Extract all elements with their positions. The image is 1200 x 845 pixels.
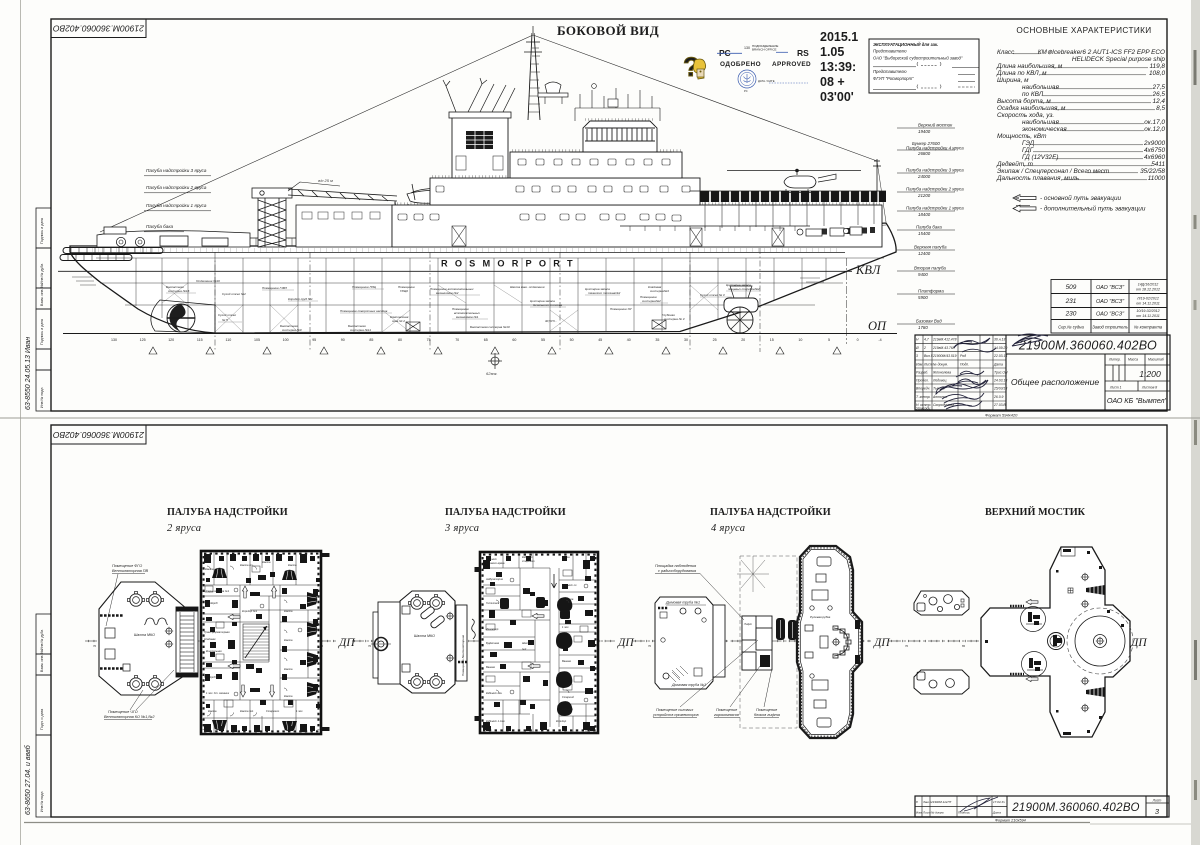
svg-text:Изолятор: Изолятор <box>486 627 499 631</box>
svg-text:24.03.13: 24.03.13 <box>993 379 1007 383</box>
svg-text:Класс: Класс <box>997 49 1015 56</box>
svg-text:110: 110 <box>226 338 232 342</box>
svg-text:Помещение ГРЩ: Помещение ГРЩ <box>352 285 376 289</box>
svg-text:Салон: Салон <box>562 555 570 559</box>
svg-text:115: 115 <box>197 338 203 342</box>
svg-text:Скородумова: Скородумова <box>933 403 954 407</box>
svg-text:90: 90 <box>341 338 345 342</box>
svg-text:Вентиляторная ПВ: Вентиляторная ПВ <box>112 569 149 573</box>
svg-text:35/22/58: 35/22/58 <box>1140 168 1165 175</box>
svg-text:Формат 594х420: Формат 594х420 <box>985 413 1018 418</box>
svg-text:18400: 18400 <box>918 212 931 217</box>
svg-text:Палуба надстройки 2 яруса: Палуба надстройки 2 яруса <box>906 187 964 192</box>
svg-text:Сер.№ судна: Сер.№ судна <box>1058 325 1084 330</box>
svg-text:Транс-форматорная: Транс-форматорная <box>204 630 230 634</box>
svg-text:Подпись и дата: Подпись и дата <box>40 319 44 345</box>
svg-text:Палуба надстройки 2 яруса: Палуба надстройки 2 яруса <box>146 184 207 190</box>
svg-text:Дымовая труба №1: Дымовая труба №1 <box>665 601 700 605</box>
svg-text:Палуба надстройки 3 яруса: Палуба надстройки 3 яруса <box>906 168 964 173</box>
svg-text:Дата: Дата <box>992 811 1001 815</box>
svg-text:22.03.16: 22.03.16 <box>993 354 1007 358</box>
svg-text:Кабинет гл.: Кабинет гл. <box>562 583 577 587</box>
svg-text:судового врача: судового врача <box>486 561 505 565</box>
svg-text:Палуба надстройки 3 яруса: Палуба надстройки 3 яруса <box>146 167 207 173</box>
svg-text:Шахта маш. отделения: Шахта маш. отделения <box>510 285 545 289</box>
svg-text:от 14.11.2011: от 14.11.2011 <box>1136 302 1159 306</box>
svg-text:12400: 12400 <box>918 251 931 256</box>
svg-text:ОАО "ВСЗ": ОАО "ВСЗ" <box>1096 285 1125 291</box>
svg-text:21900М.360060.402ВО: 21900М.360060.402ВО <box>1011 802 1140 814</box>
svg-text:Дымовая труба №1: Дымовая труба №1 <box>671 683 706 687</box>
svg-text:Масса: Масса <box>1128 358 1138 362</box>
svg-text:Каюта: Каюта <box>288 563 297 567</box>
svg-text:4х6960: 4х6960 <box>1144 154 1165 161</box>
svg-text:24000: 24000 <box>917 174 931 179</box>
svg-text:Лифт: Лифт <box>743 622 753 626</box>
svg-text:60: 60 <box>512 338 516 342</box>
svg-text:№ контракта: № контракта <box>1134 325 1163 330</box>
svg-text:Каюта: Каюта <box>284 609 293 613</box>
svg-text:ОАО "ВСЗ": ОАО "ВСЗ" <box>1096 312 1125 318</box>
svg-text:65: 65 <box>484 338 488 342</box>
svg-text:12,4: 12,4 <box>1153 98 1166 105</box>
svg-text:ПАЛУБА НАДСТРОЙКИ: ПАЛУБА НАДСТРОЙКИ <box>167 506 288 518</box>
svg-text:ок.12,0: ок.12,0 <box>1144 126 1165 133</box>
svg-text:10/19-02/2012: 10/19-02/2012 <box>1136 309 1159 313</box>
svg-text:устройств прожекторов: устройств прожекторов <box>652 713 699 717</box>
svg-text:55: 55 <box>541 338 545 342</box>
svg-text:ГД (12V32Е): ГД (12V32Е) <box>1022 154 1058 161</box>
svg-text:Экипаж / Спецперсонал / Всего: Экипаж / Спецперсонал / Всего мест <box>997 168 1110 175</box>
svg-text:Вкл.5: Вкл.5 <box>924 354 933 358</box>
svg-text:Мощность, кВт: Мощность, кВт <box>997 133 1047 140</box>
svg-text:зона № 2: зона № 2 <box>391 319 405 323</box>
svg-text:Палуба бака: Палуба бака <box>146 224 173 229</box>
svg-text:с радиооборудования: с радиооборудования <box>658 569 696 573</box>
svg-text:Помещение ОУ: Помещение ОУ <box>610 307 633 311</box>
svg-text:2х9000: 2х9000 <box>1143 140 1165 147</box>
svg-text:70: 70 <box>455 338 459 342</box>
svg-text:Дата: Дата <box>993 363 1003 367</box>
svg-text:Лист 1: Лист 1 <box>1109 386 1122 390</box>
svg-text:- дополнительный путь эвакуац: - дополнительный путь эвакуации <box>1040 205 1146 213</box>
svg-text:ГДГ: ГДГ <box>1022 147 1034 154</box>
svg-text:45: 45 <box>598 338 602 342</box>
svg-text:ДП: ДП <box>1130 637 1147 649</box>
svg-text:Длина наибольшая, м: Длина наибольшая, м <box>996 62 1063 70</box>
svg-text:130: 130 <box>111 338 117 342</box>
svg-text:21900М.360060.402ВО: 21900М.360060.402ВО <box>53 23 145 33</box>
svg-text:Старший: Старший <box>562 695 574 699</box>
svg-text:70: 70 <box>905 644 909 648</box>
svg-text:ЭКСПЛУАТАЦИОННЫЙ для зак.: ЭКСПЛУАТАЦИОННЫЙ для зак. <box>873 42 938 47</box>
svg-text:Ø: Ø <box>915 346 919 350</box>
svg-text:Палуба надстройки 1 яруса: Палуба надстройки 1 яруса <box>146 202 207 208</box>
svg-text:Листов 8: Листов 8 <box>1141 386 1157 390</box>
svg-text:ОП: ОП <box>868 319 887 333</box>
svg-text:Рулевая рубка: Рулевая рубка <box>810 615 831 619</box>
svg-text:№ докум.: № докум. <box>933 363 948 367</box>
svg-text:1:200: 1:200 <box>1139 369 1161 379</box>
svg-text:тяжелого топлива№2: тяжелого топлива№2 <box>588 291 621 295</box>
svg-text:65: 65 <box>962 644 966 648</box>
svg-text:-4: -4 <box>878 338 881 342</box>
svg-text:75: 75 <box>427 338 431 342</box>
svg-text:ОАО "ВСЗ": ОАО "ВСЗ" <box>1096 299 1125 305</box>
svg-text:ок.17,0: ок.17,0 <box>1144 119 1165 126</box>
svg-text:70: 70 <box>648 644 652 648</box>
svg-text:Вентиляторная КО №1,№2: Вентиляторная КО №1,№2 <box>104 715 155 719</box>
svg-text:1 чел.: 1 чел. <box>296 709 303 713</box>
svg-text:219вМ.412.478: 219вМ.412.478 <box>932 338 957 342</box>
svg-text:95: 95 <box>312 338 316 342</box>
svg-text:5411: 5411 <box>1151 161 1165 168</box>
svg-text:1.05: 1.05 <box>820 45 844 59</box>
svg-text:RS: RS <box>797 48 809 58</box>
svg-text:Инв № дубл.: Инв № дубл. <box>40 263 44 284</box>
svg-text:231: 231 <box>1065 298 1077 305</box>
svg-text:систерна № 3: систерна № 3 <box>664 317 685 321</box>
svg-text:Шахта МКО: Шахта МКО <box>134 633 155 637</box>
svg-text:Общее расположение: Общее расположение <box>1011 377 1100 387</box>
svg-text:27,5: 27,5 <box>1152 84 1166 91</box>
svg-text:старшего: старшего <box>522 560 535 563</box>
svg-text:4 яруса: 4 яруса <box>711 523 745 534</box>
svg-text:Инв № подл.: Инв № подл. <box>40 791 44 812</box>
svg-text:ROSMORPORT: ROSMORPORT <box>441 259 580 269</box>
svg-text:1780: 1780 <box>918 325 928 330</box>
svg-text:3 яруса: 3 яруса <box>444 523 479 534</box>
svg-text:25/03/13: 25/03/13 <box>993 387 1007 391</box>
svg-text:Палуба надстройки 1 яруса: Палуба надстройки 1 яруса <box>906 206 964 211</box>
svg-text:125: 125 <box>140 338 146 342</box>
svg-text:Каюта: Каюта <box>205 567 214 571</box>
svg-text:35: 35 <box>655 338 659 342</box>
svg-text:14Д/16/2012: 14Д/16/2012 <box>1138 283 1159 287</box>
svg-text:15400: 15400 <box>918 231 931 236</box>
svg-text:Верхняя палуба: Верхняя палуба <box>914 245 947 250</box>
svg-text:Утверди.: Утверди. <box>916 407 931 411</box>
svg-text:ДАТА / DATE: ДАТА / DATE <box>758 79 775 83</box>
svg-text:Помещение: Помещение <box>756 708 777 712</box>
svg-text:систерна №9: систерна №9 <box>282 328 302 332</box>
svg-text:№2: №2 <box>522 647 527 651</box>
svg-text:Вторая палуба: Вторая палуба <box>914 266 946 271</box>
svg-text:70: 70 <box>93 644 97 648</box>
svg-text:219вМ.43.768: 219вМ.43.768 <box>932 346 955 350</box>
svg-text:509: 509 <box>1066 284 1077 291</box>
svg-text:Помещение силовых: Помещение силовых <box>656 708 694 712</box>
svg-text:40: 40 <box>627 338 631 342</box>
svg-text:Шахта: Шахта <box>522 641 531 645</box>
svg-text:Кабинет нач.: Кабинет нач. <box>486 691 503 695</box>
svg-text:Литер.: Литер. <box>1108 358 1121 362</box>
svg-text:120: 120 <box>168 338 174 342</box>
svg-text:Гардероб: Гардероб <box>206 601 218 605</box>
svg-text:108,0: 108,0 <box>1149 70 1165 77</box>
svg-text:Базовая Вид: Базовая Вид <box>916 319 942 324</box>
svg-text:HELIDECK Special purpose ship: HELIDECK Special purpose ship <box>1072 56 1166 63</box>
svg-text:Взам. инв. №: Взам. инв. № <box>40 650 44 672</box>
svg-text:Кабинет: Кабинет <box>562 707 574 711</box>
svg-text:9400: 9400 <box>918 272 928 277</box>
svg-text:20: 20 <box>741 338 745 342</box>
svg-text:ПАЛУБА НАДСТРОЙКИ: ПАЛУБА НАДСТРОЙКИ <box>445 506 566 518</box>
svg-text:Трис.ОН: Трис.ОН <box>994 371 1008 375</box>
svg-text:14.09.20: 14.09.20 <box>994 346 1007 350</box>
svg-text:ПАЛУБА НАДСТРОЙКИ: ПАЛУБА НАДСТРОЙКИ <box>710 506 831 518</box>
svg-text:Каюта: Каюта <box>208 709 217 713</box>
svg-text:63-8550 24.05.13 Иван: 63-8550 24.05.13 Иван <box>25 337 32 410</box>
svg-text:Лист: Лист <box>922 811 931 815</box>
svg-text:Т. контр.: Т. контр. <box>916 395 931 399</box>
svg-text:5900: 5900 <box>918 295 928 300</box>
svg-text:Подпись и дата: Подпись и дата <box>40 218 44 244</box>
svg-text:1 чел. Ст. механик: 1 чел. Ст. механик <box>206 691 230 695</box>
svg-text:гирокомпасов: гирокомпасов <box>714 713 739 717</box>
svg-text:4,7: 4,7 <box>924 338 929 342</box>
svg-text:Завод строитель: Завод строитель <box>1092 325 1128 330</box>
svg-text:Род: Род <box>960 354 966 358</box>
svg-text:10: 10 <box>798 338 802 342</box>
svg-text:105: 105 <box>254 338 260 342</box>
svg-text:систерна№2: систерна№2 <box>642 299 661 303</box>
svg-text:БОКОВОЙ ВИД: БОКОВОЙ ВИД <box>557 23 659 38</box>
svg-text:Инв № подл.: Инв № подл. <box>40 387 44 408</box>
svg-text:№ 5: № 5 <box>222 318 228 322</box>
svg-text:Ледовец: Ледовец <box>932 379 947 383</box>
svg-text:70: 70 <box>368 644 372 648</box>
svg-text:Помещение поворотных насосов: Помещение поворотных насосов <box>340 309 388 313</box>
svg-text:Палуба бака: Палуба бака <box>916 225 942 230</box>
svg-text:2 яруса: 2 яруса <box>167 523 201 534</box>
svg-text:экономическая: экономическая <box>1022 126 1067 133</box>
svg-text:Сухой отсек: Сухой отсек <box>218 313 237 317</box>
svg-text:ГРЩ2: ГРЩ2 <box>400 289 408 293</box>
svg-text:19400: 19400 <box>918 129 931 134</box>
svg-text:Площадка наблюдения: Площадка наблюдения <box>655 564 696 568</box>
svg-text:Каюта: Каюта <box>284 694 293 698</box>
svg-text:Высота борта, м: Высота борта, м <box>997 97 1051 105</box>
svg-text:8,5: 8,5 <box>1156 105 1165 112</box>
svg-text:13:39:: 13:39: <box>820 60 856 74</box>
svg-text:Л/19-02/2012: Л/19-02/2012 <box>1136 297 1159 301</box>
svg-text:ОАО КБ "Вымпел": ОАО КБ "Вымпел" <box>1107 396 1168 405</box>
svg-text:17.04.Хх: 17.04.Хх <box>993 800 1005 804</box>
svg-text:Разраб.: Разраб. <box>916 371 928 375</box>
svg-text:85: 85 <box>369 338 373 342</box>
svg-text:100: 100 <box>283 338 289 342</box>
svg-text:BRANCH OFFICE: BRANCH OFFICE <box>752 48 777 52</box>
svg-text:Скорость хода, уз.: Скорость хода, уз. <box>997 111 1054 119</box>
svg-text:Масштаб: Масштаб <box>1148 358 1164 362</box>
svg-text:Изм.: Изм. <box>916 811 923 815</box>
svg-text:ДП: ДП <box>873 637 890 649</box>
svg-text:ВЕРХНИЙ МОСТИК: ВЕРХНИЙ МОСТИК <box>985 506 1086 518</box>
svg-text:80: 80 <box>398 338 402 342</box>
svg-text:2: 2 <box>923 346 926 350</box>
svg-text:Сухой отсек № 3: Сухой отсек № 3 <box>700 293 725 297</box>
svg-text:11000: 11000 <box>1148 175 1166 182</box>
svg-text:Кладовая: Кладовая <box>204 637 216 641</box>
svg-text:наибольшая: наибольшая <box>1022 83 1059 91</box>
svg-text:Сауна экипажа №1: Сауна экипажа №1 <box>206 589 230 593</box>
svg-text:21900М.112ЛТ: 21900М.112ЛТ <box>930 800 953 804</box>
svg-text:Коридор груб №1: Коридор груб №1 <box>288 297 313 301</box>
svg-text:Представителю: Представителю <box>873 49 907 54</box>
svg-text:15: 15 <box>770 338 774 342</box>
svg-text:4х6750: 4х6750 <box>1144 147 1165 154</box>
svg-text:3: 3 <box>916 354 918 358</box>
svg-text:Амбулатория: Амбулатория <box>485 577 504 581</box>
svg-text:пищевых погребов№2: пищевых погребов№2 <box>728 287 760 291</box>
svg-text:по КВЛ: по КВЛ <box>1022 91 1044 98</box>
svg-text:30: 30 <box>684 338 688 342</box>
svg-text:Верхний мостик: Верхний мостик <box>918 123 953 128</box>
svg-text:230: 230 <box>1065 311 1077 318</box>
svg-text:1 чел.: 1 чел. <box>562 625 569 629</box>
svg-text:Буфетная: Буфетная <box>486 641 500 645</box>
svg-text:30,5УЗ...: 30,5УЗ... <box>545 319 557 323</box>
svg-text:Длина по КВЛ, м: Длина по КВЛ, м <box>996 70 1047 77</box>
svg-text:КВЛ: КВЛ <box>855 263 882 277</box>
svg-text:Формат 210х594: Формат 210х594 <box>995 819 1026 823</box>
svg-text:Кабинет: Кабинет <box>522 555 534 559</box>
svg-text:ДП: ДП <box>338 637 355 649</box>
svg-text:механизмов №1: механизмов №1 <box>456 315 479 319</box>
svg-text:Жлонолева: Жлонолева <box>932 371 951 375</box>
svg-text:Каюта №1: Каюта №1 <box>240 709 254 713</box>
svg-text:Отделение №16: Отделение №16 <box>196 279 220 283</box>
svg-text:ОДОБРЕНО: ОДОБРЕНО <box>720 61 761 68</box>
svg-text:Ширина, м: Ширина, м <box>997 77 1029 84</box>
svg-text:от 14.11.2011: от 14.11.2011 <box>1136 314 1159 318</box>
svg-text:Сухой отсек №2: Сухой отсек №2 <box>222 292 246 296</box>
svg-text:Помещение Г1ВЛ: Помещение Г1ВЛ <box>262 286 288 290</box>
svg-text:50: 50 <box>570 338 574 342</box>
svg-text:30.н.13: 30.н.13 <box>994 338 1005 342</box>
svg-text:21900М.360060.402ВО: 21900М.360060.402ВО <box>53 430 145 440</box>
svg-text:в/п 25 м: в/п 25 м <box>318 178 333 183</box>
svg-text:Подп.: Подп. <box>960 363 969 367</box>
svg-text:дизельного топлива: дизельного топлива <box>533 303 562 307</box>
svg-text:от 18.12.2012: от 18.12.2012 <box>1136 288 1160 292</box>
svg-text:62энк.: 62энк. <box>486 371 498 376</box>
svg-text:130: 130 <box>744 46 750 50</box>
svg-text:механика: механика <box>562 598 574 601</box>
svg-text:Каюта ст.: Каюта ст. <box>240 563 254 567</box>
svg-text:03'00': 03'00' <box>820 90 854 104</box>
svg-text:систерна №16: систерна №16 <box>168 289 190 293</box>
svg-text:ГЭД: ГЭД <box>1022 140 1035 147</box>
svg-text:Подп. и дата: Подп. и дата <box>40 709 44 730</box>
svg-text:26,5: 26,5 <box>1152 91 1166 98</box>
svg-text:26800: 26800 <box>917 151 931 156</box>
svg-text:систерна№3: систерна№3 <box>650 289 669 293</box>
svg-text:Госпиталь: Госпиталь <box>486 601 500 605</box>
svg-text:Каюта: Каюта <box>284 667 293 671</box>
svg-text:119,8: 119,8 <box>1149 63 1165 70</box>
svg-text:Ванная: Ванная <box>486 665 495 669</box>
svg-text:0: 0 <box>857 338 859 342</box>
svg-text:№ докум.: № докум. <box>931 811 944 815</box>
svg-text:Представителю: Представителю <box>873 69 907 74</box>
svg-text:ДП: ДП <box>617 637 634 649</box>
svg-text:КМ⊛Icebreaker6 2 AUT1-ICS FF2: КМ⊛Icebreaker6 2 AUT1-ICS FF2 EPP ECO <box>1038 49 1165 56</box>
svg-text:Коридор: Коридор <box>556 719 567 723</box>
svg-text:Коридор №1: Коридор №1 <box>242 609 258 613</box>
svg-text:Помещение ЧГО: Помещение ЧГО <box>108 710 138 714</box>
svg-text:Помещение Вентиляторная: Помещение Вентиляторная <box>461 634 465 676</box>
svg-text:Взам. инв. №: Взам. инв. № <box>40 284 44 306</box>
svg-text:- основной путь эвакуации: - основной путь эвакуации <box>1040 194 1121 202</box>
svg-text:Старшего: Старшего <box>266 709 280 713</box>
svg-text:Балластная систерна №10: Балластная систерна №10 <box>470 325 510 329</box>
svg-text:наибольшая: наибольшая <box>1022 118 1059 126</box>
svg-text:Пробел.: Пробел. <box>916 379 929 383</box>
svg-text:Кинозальная: Кинозальная <box>206 649 222 653</box>
svg-text:ОАО "Выборгский судостроительн: ОАО "Выборгский судостроительный завод" <box>873 56 963 61</box>
svg-text:Инв № дубл.: Инв № дубл. <box>40 629 44 650</box>
svg-text:Осадка наибольшая, м: Осадка наибольшая, м <box>997 104 1066 112</box>
svg-text:27.03.В: 27.03.В <box>993 403 1006 407</box>
svg-text:63-8650 27.04. и вввб: 63-8650 27.04. и вввб <box>24 744 32 815</box>
svg-text:систерна №11: систерна №11 <box>350 328 371 332</box>
svg-text:Шахта МКО: Шахта МКО <box>414 634 435 638</box>
svg-text:ФГУП "Росморпорт": ФГУП "Росморпорт" <box>873 76 914 81</box>
svg-text:Платформа: Платформа <box>918 289 944 294</box>
svg-text:Лист: Лист <box>923 363 933 367</box>
svg-text:Кабинет: Кабинет <box>486 557 498 561</box>
svg-text:Лист: Лист <box>1152 799 1162 803</box>
svg-text:Каюта: Каюта <box>284 638 293 642</box>
svg-text:21200: 21200 <box>917 193 931 198</box>
svg-text:РС: РС <box>744 89 748 93</box>
svg-text:Помещение ФГО: Помещение ФГО <box>112 564 142 568</box>
svg-text:Впередч.: Впередч. <box>916 387 930 391</box>
svg-text:Ванная: Ванная <box>562 659 571 663</box>
svg-text:26.0.9: 26.0.9 <box>993 395 1004 399</box>
svg-text:APPROVED: APPROVED <box>772 61 811 68</box>
svg-text:25: 25 <box>713 338 717 342</box>
svg-text:блоков лифта: блоков лифта <box>754 713 780 717</box>
svg-text:Гардероб №2: Гардероб №2 <box>204 675 221 679</box>
svg-text:Изм.: Изм. <box>916 363 923 367</box>
svg-text:механизмов №2: механизмов №2 <box>436 291 459 295</box>
svg-text:08 +: 08 + <box>820 75 845 89</box>
svg-text:2015.1: 2015.1 <box>820 30 858 44</box>
svg-text:Помещение: Помещение <box>716 708 737 712</box>
svg-text:Кабинет 1 пом.: Кабинет 1 пом. <box>486 719 505 723</box>
svg-text:Палуба надстройки 4 яруса: Палуба надстройки 4 яруса <box>906 145 964 150</box>
svg-text:21900М/43.519: 21900М/43.519 <box>932 354 957 358</box>
svg-text:5: 5 <box>828 338 830 342</box>
svg-text:ОСНОВНЫЕ ХАРАКТЕРИСТИКИ: ОСНОВНЫЕ ХАРАКТЕРИСТИКИ <box>1016 26 1151 35</box>
svg-text:Дедвейт, т: Дедвейт, т <box>996 160 1034 168</box>
svg-text:Дальность плавания, миль: Дальность плавания, миль <box>996 175 1079 182</box>
svg-text:Каюта: Каюта <box>262 560 271 564</box>
